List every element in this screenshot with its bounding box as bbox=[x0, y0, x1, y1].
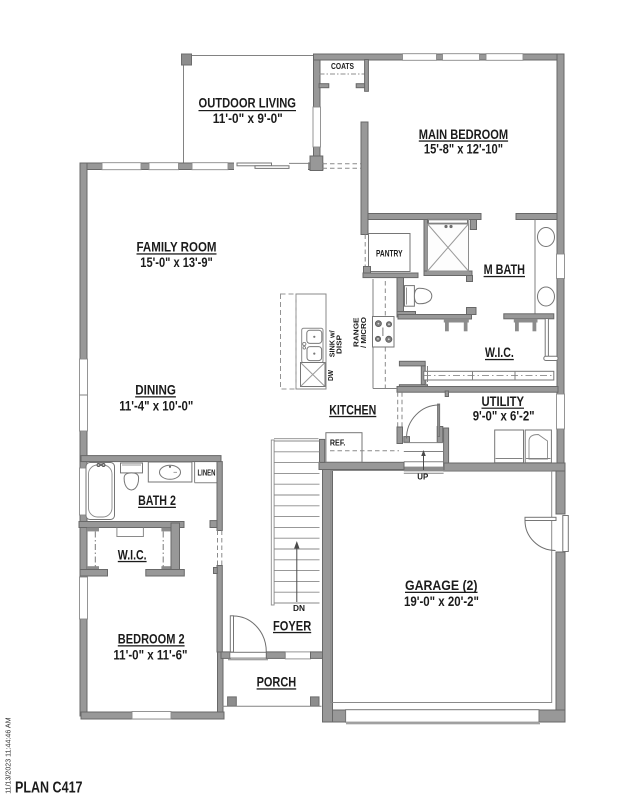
svg-text:M BATH: M BATH bbox=[484, 261, 525, 277]
svg-text:19'-0" x 20'-2": 19'-0" x 20'-2" bbox=[404, 593, 479, 609]
svg-text:RANGE: RANGE bbox=[354, 317, 361, 347]
svg-text:BATH 2: BATH 2 bbox=[138, 492, 176, 508]
svg-text:LINEN: LINEN bbox=[198, 468, 216, 477]
svg-text:11'-0" x 11'-6": 11'-0" x 11'-6" bbox=[113, 647, 187, 663]
svg-text:OUTDOOR LIVING: OUTDOOR LIVING bbox=[199, 96, 297, 111]
svg-text:FOYER: FOYER bbox=[273, 617, 311, 633]
svg-text:COATS: COATS bbox=[331, 61, 354, 71]
svg-text:SINK w/: SINK w/ bbox=[330, 330, 337, 357]
svg-text:DISP: DISP bbox=[337, 335, 344, 354]
svg-text:UTILITY: UTILITY bbox=[482, 393, 525, 409]
svg-text:PORCH: PORCH bbox=[257, 674, 297, 690]
svg-text:11/13/2023 11:44:46 AM: 11/13/2023 11:44:46 AM bbox=[6, 717, 13, 793]
svg-text:W.I.C.: W.I.C. bbox=[118, 546, 147, 562]
svg-text:FAMILY ROOM: FAMILY ROOM bbox=[137, 239, 217, 255]
svg-text:W.I.C.: W.I.C. bbox=[485, 344, 514, 360]
svg-text:DINING: DINING bbox=[135, 382, 176, 398]
svg-text:11'-0" x 9'-0": 11'-0" x 9'-0" bbox=[213, 111, 283, 126]
svg-text:15'-0" x 13'-9": 15'-0" x 13'-9" bbox=[140, 254, 213, 270]
svg-text:KITCHEN: KITCHEN bbox=[329, 401, 376, 417]
svg-text:PANTRY: PANTRY bbox=[376, 249, 403, 259]
svg-text:11'-4" x 10'-0": 11'-4" x 10'-0" bbox=[119, 398, 193, 414]
svg-text:15'-8" x 12'-10": 15'-8" x 12'-10" bbox=[424, 140, 503, 156]
svg-text:DW: DW bbox=[328, 370, 335, 381]
svg-text:REF.: REF. bbox=[330, 438, 346, 448]
svg-text:/ MICRO: / MICRO bbox=[361, 316, 368, 348]
svg-text:DN: DN bbox=[293, 603, 305, 613]
svg-text:UP: UP bbox=[417, 472, 428, 482]
svg-text:BEDROOM 2: BEDROOM 2 bbox=[118, 631, 185, 647]
svg-text:9'-0" x 6'-2": 9'-0" x 6'-2" bbox=[473, 407, 535, 423]
svg-text:GARAGE (2): GARAGE (2) bbox=[405, 577, 478, 593]
svg-text:PLAN C417: PLAN C417 bbox=[15, 780, 83, 797]
